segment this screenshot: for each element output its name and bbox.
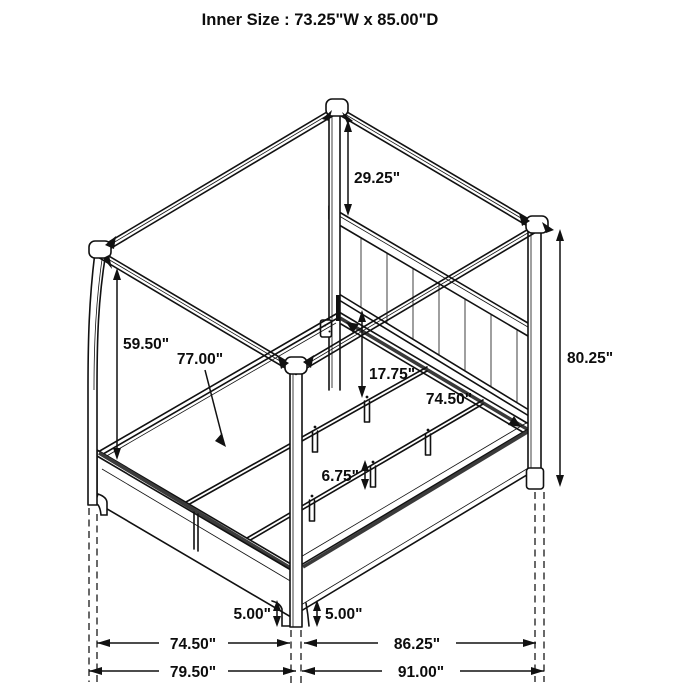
dim-front-inner-width: 74.50" <box>97 636 290 653</box>
dim-label-91-00: 91.00" <box>398 664 444 681</box>
bed-dimension-diagram: 29.25" 59.50" 77.00" 17.75" 74.50" <box>0 0 700 700</box>
dim-label-6-75: 6.75" <box>321 468 359 485</box>
dim-label-17-75: 17.75" <box>369 366 415 383</box>
dim-label-74-50-bottom: 74.50" <box>170 636 216 653</box>
footboard <box>95 450 296 626</box>
page-title: Inner Size : 73.25"W x 85.00"D <box>202 11 439 29</box>
dim-label-5-00-right: 5.00" <box>325 606 363 623</box>
dim-side-inner-length: 86.25" <box>304 636 536 653</box>
front-post <box>290 372 302 627</box>
post-slot-detail <box>336 295 341 321</box>
dim-side-outer-length: 91.00" <box>302 664 544 681</box>
canopy-corner-front <box>285 357 307 374</box>
dim-label-77-00: 77.00" <box>177 351 223 368</box>
back-post <box>321 112 341 390</box>
dim-front-outer-width: 79.50" <box>89 664 296 681</box>
dim-total-height: 80.25" <box>556 229 613 487</box>
diagram-canvas: 29.25" 59.50" 77.00" 17.75" 74.50" <box>0 0 700 700</box>
right-post-base <box>527 468 544 489</box>
dim-label-86-25: 86.25" <box>394 636 440 653</box>
dim-label-80-25: 80.25" <box>567 350 613 367</box>
dim-support-rail: 77.00" <box>177 351 226 447</box>
dim-label-79-50: 79.50" <box>170 664 216 681</box>
dim-label-59-50: 59.50" <box>123 336 169 353</box>
dim-right-clearance: 5.00" <box>313 600 363 627</box>
dim-label-29-25: 29.25" <box>354 170 400 187</box>
right-post <box>527 228 544 489</box>
dim-label-5-00-left: 5.00" <box>233 606 271 623</box>
side-rail <box>301 425 535 626</box>
dim-label-74-50-deck: 74.50" <box>426 391 472 408</box>
